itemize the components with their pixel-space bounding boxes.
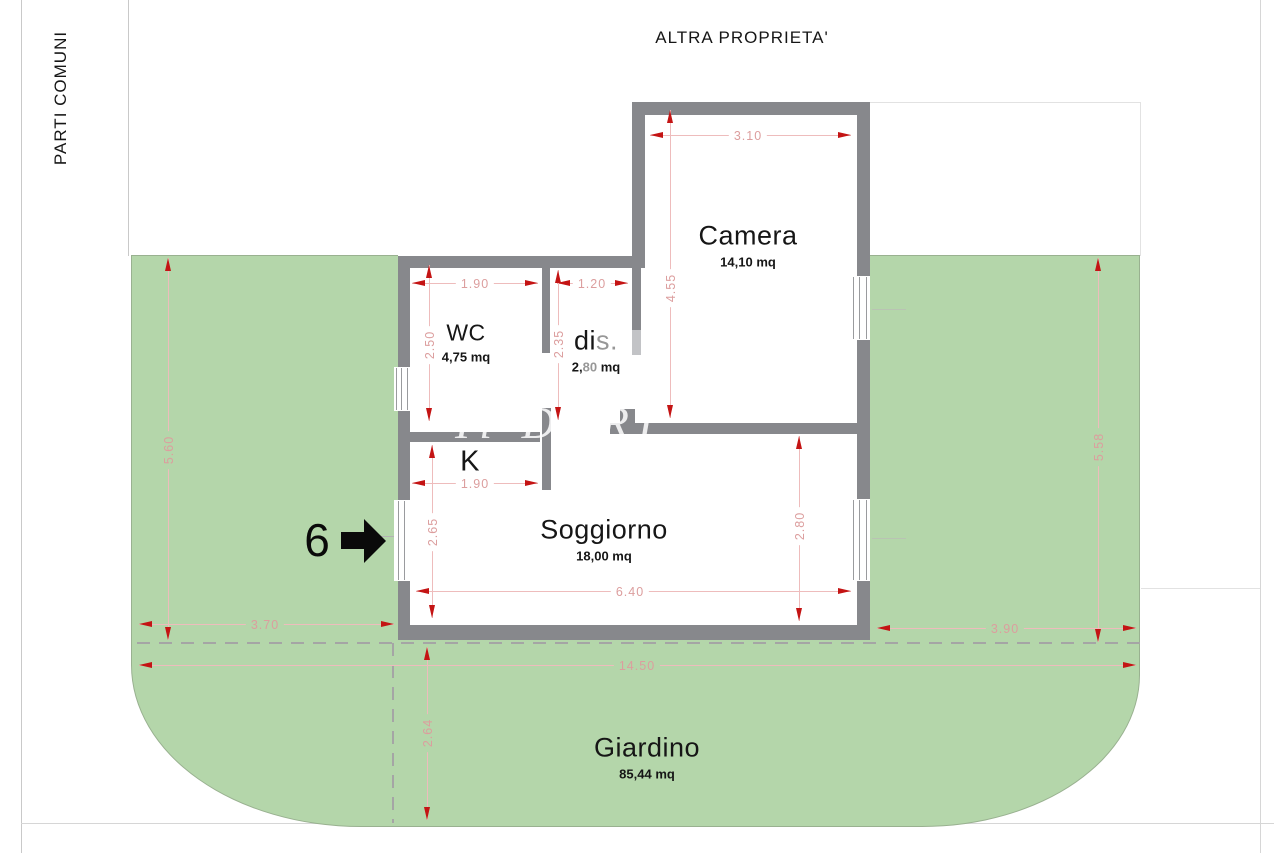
dimension-garden-bottom-height-label: 2.64 <box>421 714 435 752</box>
dimension-soggiorno-height-arrow-down <box>796 608 802 621</box>
dimension-dis-height-arrow-up <box>555 270 561 283</box>
dimension-camera-height-arrow-down <box>667 405 673 418</box>
dimension-kitchen-width-arrow-right <box>525 480 538 486</box>
dimension-kitchen-height-arrow-up <box>429 445 435 458</box>
dimension-kitchen-width-arrow-left <box>412 480 425 486</box>
dimension-camera-height-line <box>670 110 671 418</box>
dimension-camera-height-arrow-up <box>667 110 673 123</box>
dimension-dis-width-arrow-right <box>615 280 628 286</box>
dimension-garden-left-height-arrow-down <box>165 627 171 640</box>
dimension-soggiorno-height-arrow-up <box>796 436 802 449</box>
dimension-garden-right-height-label: 5.58 <box>1092 428 1106 466</box>
floor-plan-canvas: Il DERI Camera 14,10 mq WC 4,75 mq dis. … <box>0 0 1280 853</box>
dimension-camera-height-label: 4.55 <box>664 269 678 307</box>
dimension-garden-total-width-label: 14.50 <box>614 659 660 673</box>
dimension-wc-height-arrow-up <box>426 265 432 278</box>
dimension-soggiorno-width-label: 6.40 <box>611 585 649 599</box>
dimension-kitchen-height-label: 2.65 <box>426 513 440 551</box>
dimension-garden-right-height-arrow-down <box>1095 629 1101 642</box>
dimension-camera-width-label: 3.10 <box>729 129 767 143</box>
dimension-garden-bottom-height-arrow-up <box>424 647 430 660</box>
dimension-wc-height-arrow-down <box>426 408 432 421</box>
dimension-soggiorno-width-arrow-left <box>416 588 429 594</box>
dimension-kitchen-width-label: 1.90 <box>456 477 494 491</box>
dimension-garden-left-height-label: 5.60 <box>162 431 176 469</box>
dimension-camera-width-arrow-right <box>838 132 851 138</box>
dimension-layer: 3.104.551.901.202.502.351.902.656.402.80… <box>0 0 1280 853</box>
dimension-soggiorno-height-label: 2.80 <box>793 507 807 545</box>
dimension-dis-height-label: 2.35 <box>552 325 566 363</box>
dimension-wc-height-label: 2.50 <box>423 326 437 364</box>
dimension-wc-width-arrow-left <box>412 280 425 286</box>
dimension-wc-width-arrow-right <box>525 280 538 286</box>
dimension-garden-left-width-arrow-left <box>139 621 152 627</box>
dimension-garden-left-width-arrow-right <box>381 621 394 627</box>
dimension-garden-left-width-label: 3.70 <box>246 618 284 632</box>
dimension-camera-width-arrow-left <box>650 132 663 138</box>
dimension-wc-width-label: 1.90 <box>456 277 494 291</box>
dimension-garden-bottom-height-arrow-down <box>424 807 430 820</box>
dimension-garden-right-height-arrow-up <box>1095 258 1101 271</box>
dimension-garden-total-width-arrow-left <box>139 662 152 668</box>
dimension-dis-width-label: 1.20 <box>573 277 611 291</box>
dimension-garden-right-width-arrow-right <box>1123 625 1136 631</box>
dimension-garden-right-width-label: 3.90 <box>986 622 1024 636</box>
dimension-kitchen-height-arrow-down <box>429 605 435 618</box>
dimension-garden-left-height-arrow-up <box>165 258 171 271</box>
dimension-soggiorno-width-arrow-right <box>838 588 851 594</box>
dimension-dis-height-arrow-down <box>555 407 561 420</box>
dimension-garden-right-width-arrow-left <box>877 625 890 631</box>
dimension-garden-total-width-arrow-right <box>1123 662 1136 668</box>
